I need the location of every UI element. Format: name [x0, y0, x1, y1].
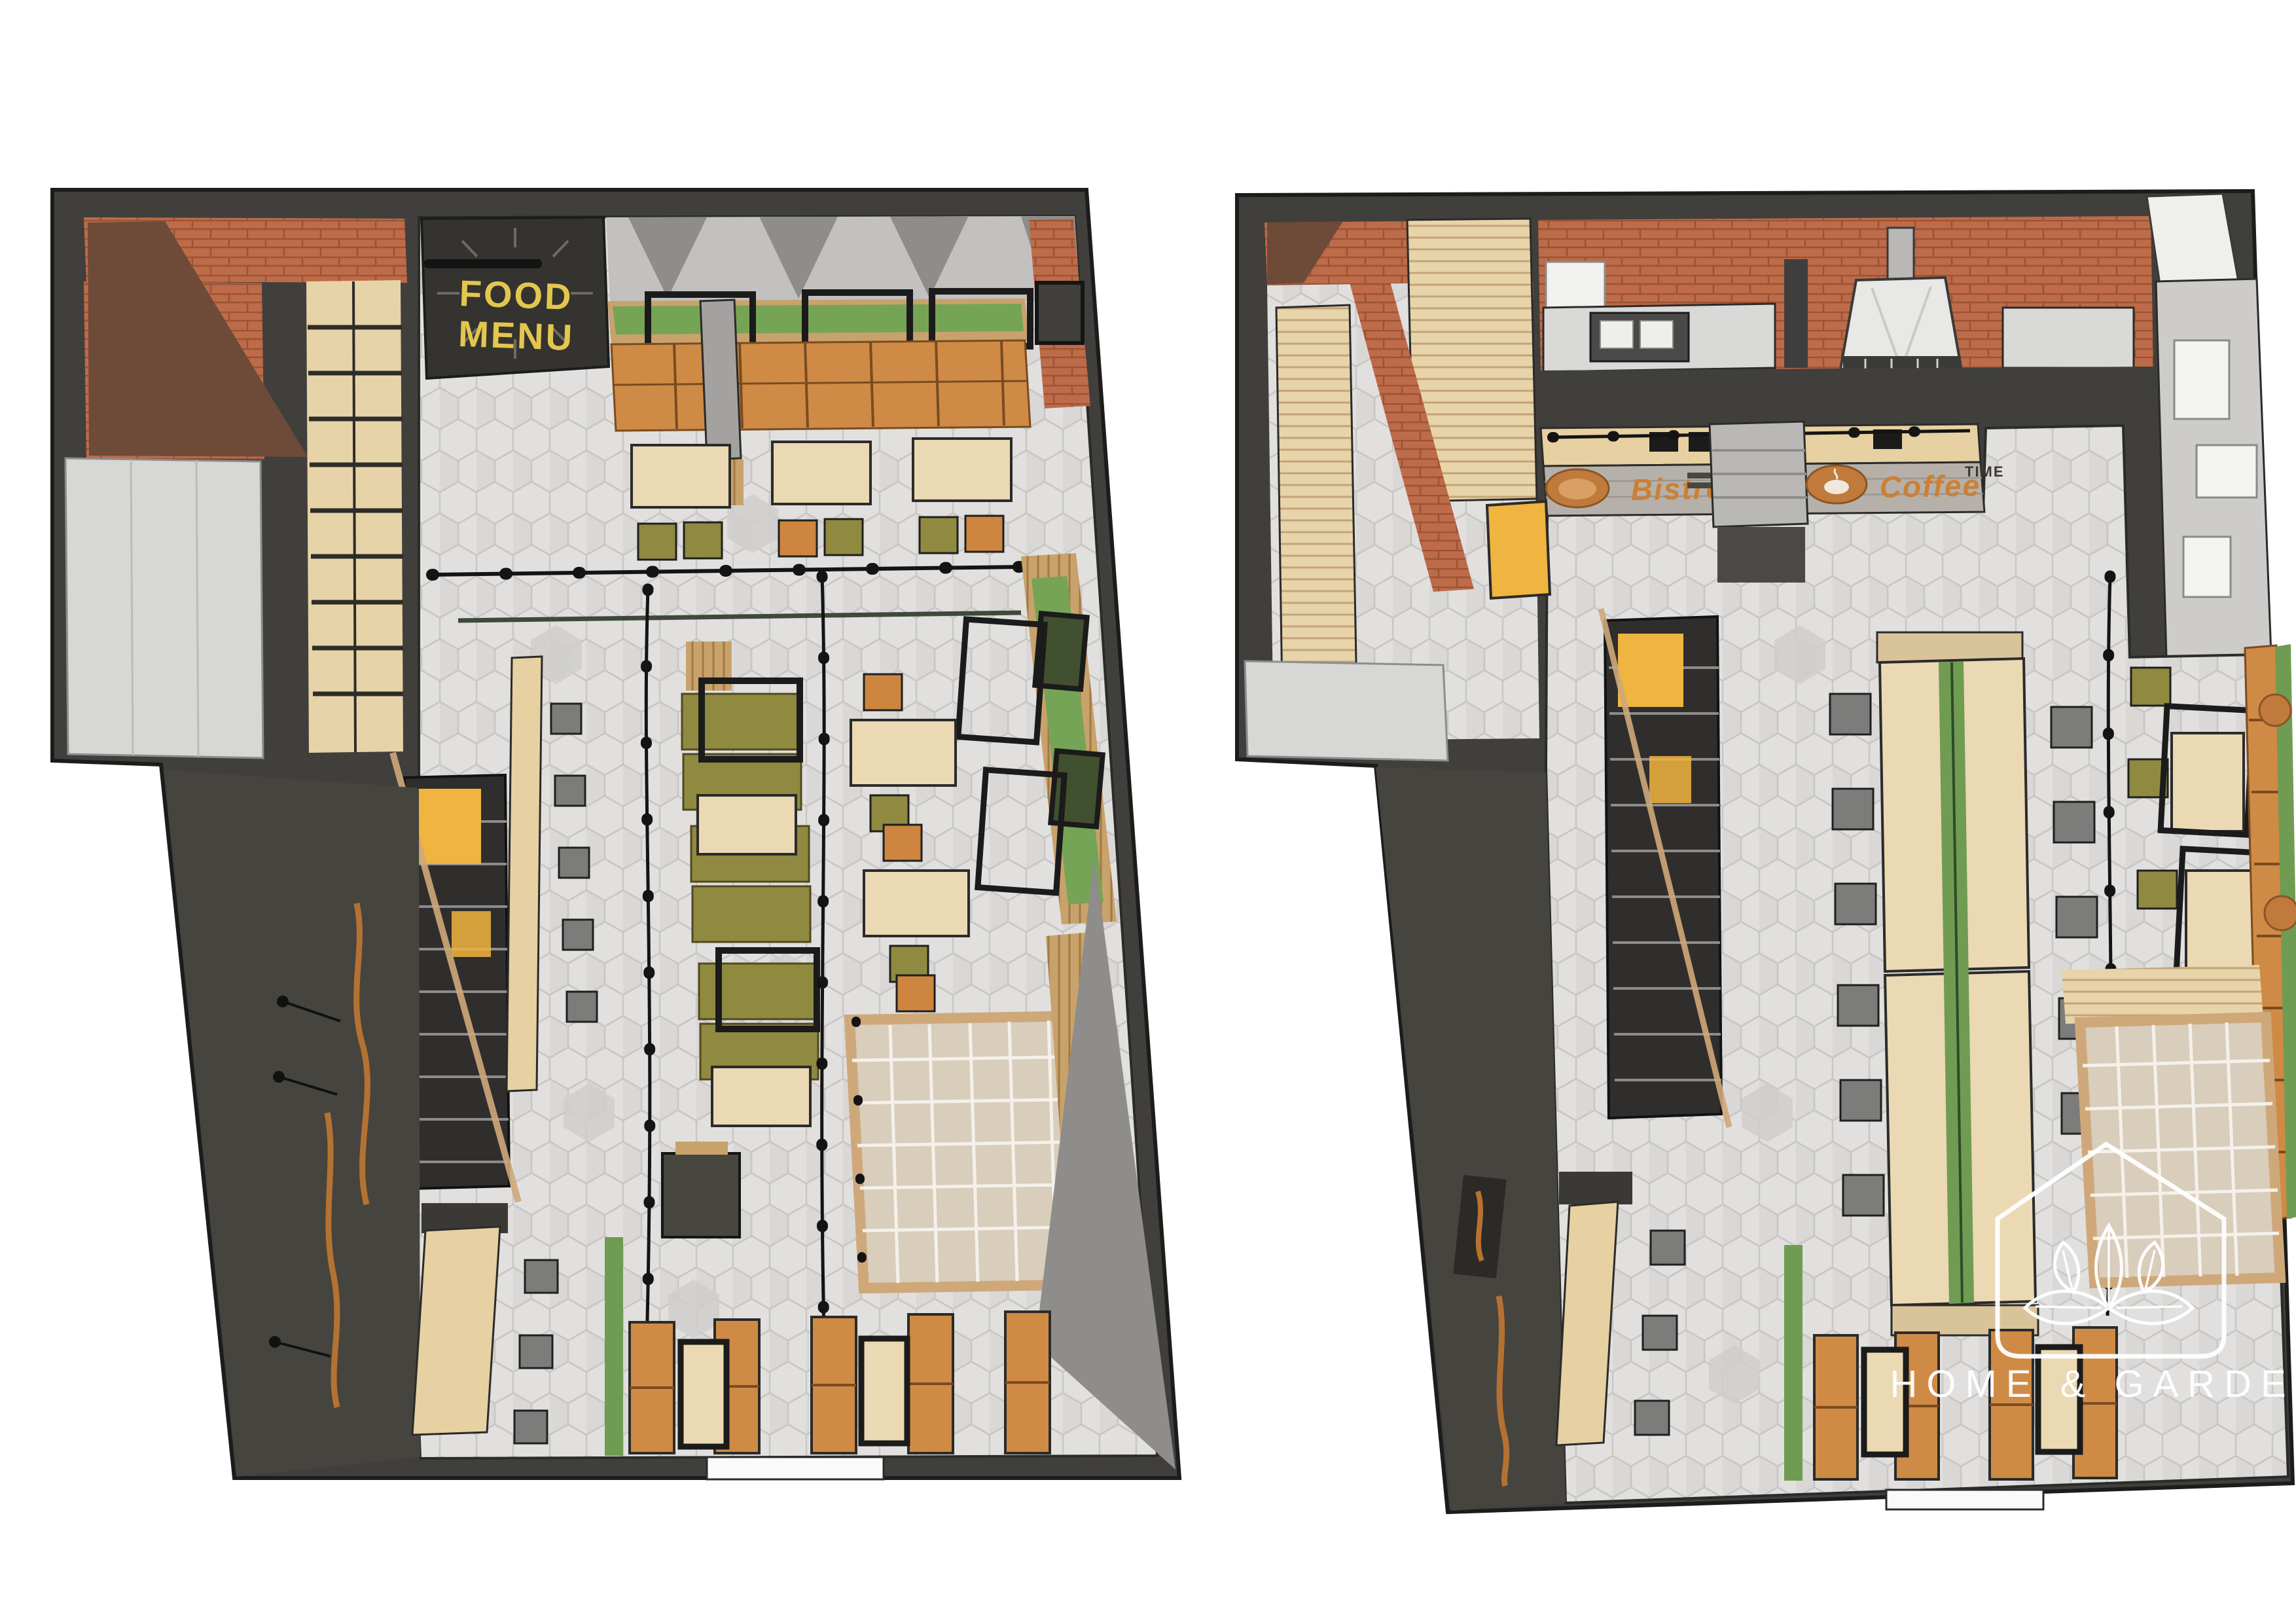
chair [684, 522, 722, 558]
storage-annex [65, 217, 407, 758]
service-pass-unit [1710, 422, 1808, 583]
appliance [2183, 537, 2231, 597]
chair [638, 524, 676, 560]
metal-staircase [1601, 609, 1729, 1127]
bar-counter [412, 1227, 500, 1435]
stool [551, 704, 581, 734]
plant-column [1784, 1245, 1803, 1481]
stair-landing [1618, 634, 1683, 707]
concrete-pillar [700, 300, 741, 460]
stool [525, 1260, 558, 1293]
fridge [2174, 340, 2229, 419]
floor-plan-render: FOOD MENU [0, 0, 2296, 1624]
stool [555, 776, 585, 806]
service-shelf [675, 1142, 728, 1155]
stool [1643, 1316, 1677, 1350]
chimney-hood [2147, 194, 2238, 284]
pizza-sign-icon [1558, 478, 1596, 499]
stool [559, 848, 589, 878]
chair [825, 519, 863, 555]
floor-plan-left: FOOD MENU [52, 190, 1179, 1479]
chair [1833, 789, 1873, 829]
dining-table [913, 439, 1011, 501]
chair [779, 520, 817, 556]
chair [2131, 668, 2170, 706]
chair [884, 825, 922, 861]
chair [864, 674, 902, 710]
dining-table [2172, 733, 2244, 831]
chair [2054, 802, 2094, 842]
stool [1635, 1401, 1669, 1435]
service-station [662, 1153, 740, 1237]
sign-shelf [424, 259, 542, 268]
food-menu-text-line1: FOOD [459, 272, 574, 317]
sofa [692, 886, 810, 942]
exterior-wall-face [1245, 661, 1448, 761]
chair [965, 516, 1003, 552]
window [1037, 283, 1083, 343]
sink [1640, 321, 1673, 348]
extraction-hood [1840, 278, 1961, 369]
exterior-wall-face [65, 458, 263, 758]
appliance [2197, 445, 2257, 497]
chair [1835, 884, 1876, 924]
chair [2056, 897, 2097, 937]
chair [897, 975, 935, 1011]
stool [520, 1335, 552, 1368]
dining-table [698, 795, 796, 854]
stool [1651, 1231, 1685, 1265]
wood-staircase [306, 280, 403, 753]
storage-annex [1245, 219, 1539, 761]
stair-landing [419, 789, 481, 864]
stool [567, 992, 597, 1022]
watermark-text: HOME & GARDEN [1890, 1363, 2296, 1405]
food-menu-sign: FOOD MENU [422, 217, 609, 378]
wall-frame [1050, 751, 1102, 827]
stair-landing [1649, 756, 1691, 803]
chair [1843, 1175, 1884, 1216]
chair [2138, 871, 2177, 909]
coffee-cup-icon [1824, 480, 1849, 494]
entrance-door [707, 1457, 884, 1479]
chimney [1888, 228, 1914, 281]
sign-subtext [1687, 482, 1713, 488]
pergola [2062, 965, 2280, 1283]
dining-table [851, 720, 956, 785]
planter-box [613, 304, 1024, 334]
coffee-time-text: TIME [1965, 463, 2005, 480]
yellow-cabinet [1487, 501, 1550, 598]
entrance-door [1886, 1490, 2043, 1509]
stool [514, 1411, 547, 1443]
service-corridor [1538, 367, 2156, 429]
dining-table [2186, 871, 2258, 969]
counter-cap [1559, 1172, 1632, 1204]
kitchen-cabinet [1546, 262, 1605, 308]
stool [563, 920, 593, 950]
dining-table [712, 1067, 810, 1126]
wall-art [1478, 1191, 1482, 1261]
chair [1838, 985, 1878, 1026]
framed-table [861, 1339, 907, 1443]
art-plaque-icon [2259, 695, 2291, 726]
art-plaque-icon [2265, 896, 2296, 930]
stove-pipe [1784, 259, 1808, 368]
bar-counter [507, 657, 542, 1091]
chair [920, 517, 958, 553]
food-menu-text-line2: MENU [457, 313, 575, 358]
chair [1830, 694, 1871, 734]
plant-column [605, 1237, 623, 1456]
chair [1840, 1080, 1881, 1121]
pass-unit-base [1717, 527, 1805, 583]
dining-table [632, 445, 730, 507]
stair-landing [452, 911, 491, 957]
framed-table [681, 1342, 726, 1447]
sink [1600, 321, 1633, 348]
chair [2051, 707, 2092, 748]
dining-table [772, 442, 870, 504]
kitchen-counter [2003, 308, 2134, 368]
dining-table [864, 871, 969, 936]
